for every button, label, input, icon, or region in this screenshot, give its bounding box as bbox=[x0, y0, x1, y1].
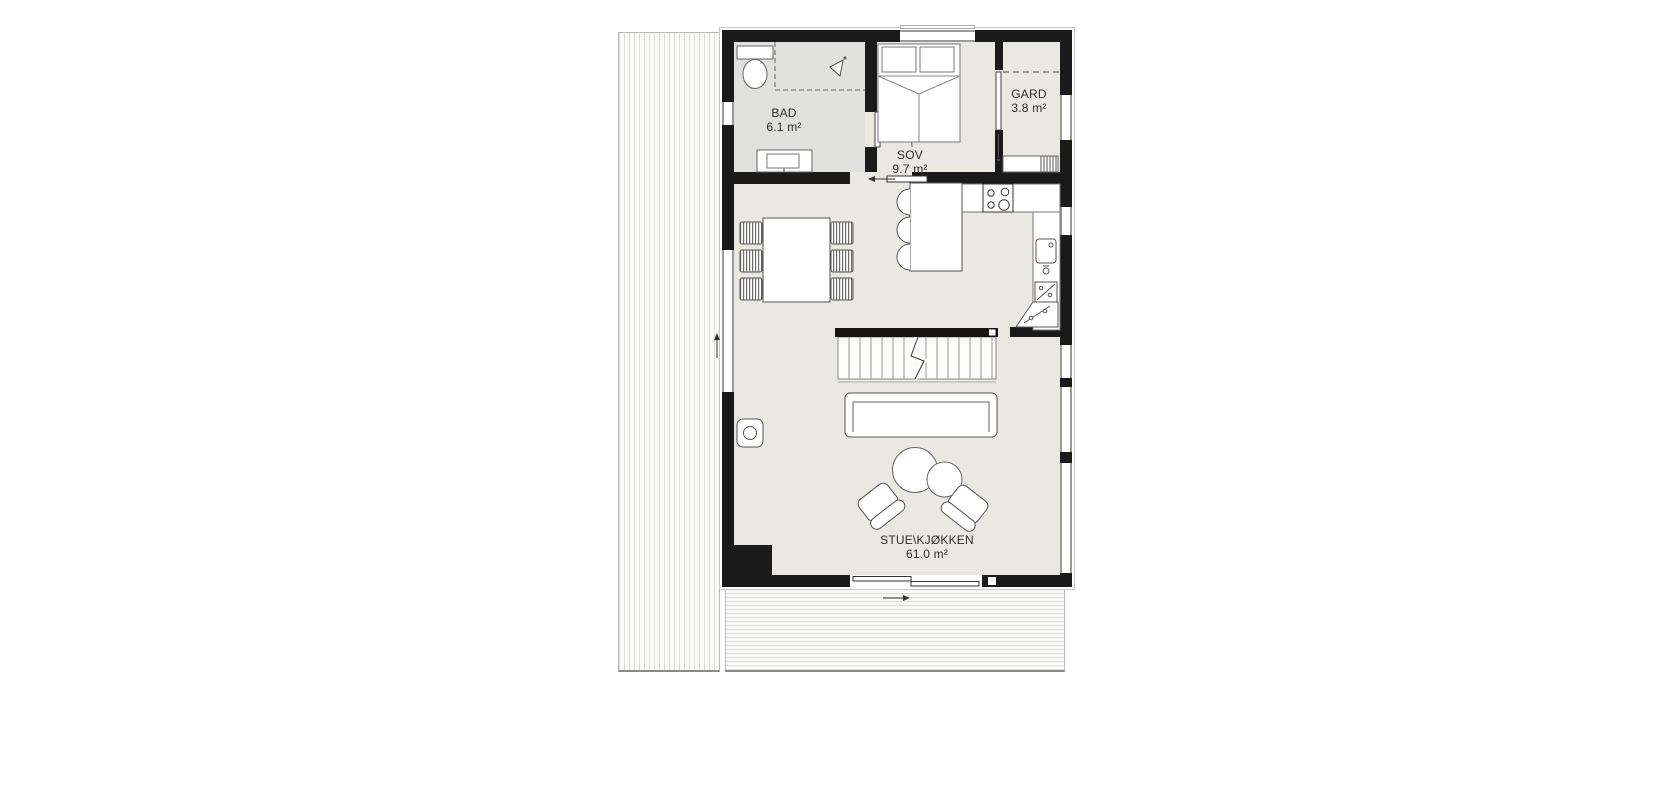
shower-icon bbox=[775, 42, 865, 90]
room-area: 9.7 m² bbox=[860, 162, 960, 176]
vanity-sink-icon bbox=[757, 150, 812, 172]
armchair-icon-left bbox=[854, 480, 907, 532]
room-name: SOV bbox=[860, 148, 960, 162]
sliding-door-icon-sov bbox=[869, 176, 927, 182]
room-label-bad: BAD 6.1 m² bbox=[734, 106, 834, 134]
kitchen-island-icon bbox=[897, 183, 962, 271]
room-name: STUE\KJØKKEN bbox=[847, 533, 1007, 547]
bar-stool-icon bbox=[897, 217, 910, 243]
bar-stool-icon bbox=[897, 244, 910, 270]
dishwasher-icon bbox=[1035, 282, 1057, 302]
sofa-icon bbox=[845, 393, 997, 437]
window-sill-top bbox=[900, 25, 975, 29]
corner-cabinet-icon bbox=[1016, 302, 1058, 327]
floor-plan: BAD 6.1 m² SOV 9.7 m² GARD 3.8 m² STUE\K… bbox=[617, 30, 1075, 675]
floorplan-canvas: BAD 6.1 m² SOV 9.7 m² GARD 3.8 m² STUE\K… bbox=[0, 0, 1670, 800]
dining-table-icon bbox=[740, 218, 853, 302]
toilet-icon bbox=[737, 46, 773, 89]
room-name: BAD bbox=[734, 106, 834, 120]
room-area: 61.0 m² bbox=[847, 547, 1007, 561]
bar-stool-icon bbox=[897, 189, 910, 215]
double-bed-icon bbox=[878, 44, 960, 142]
room-label-stue-kjokken: STUE\KJØKKEN 61.0 m² bbox=[847, 533, 1007, 561]
staircase-icon bbox=[835, 328, 998, 382]
sliding-door-icon-bottom bbox=[853, 577, 979, 599]
room-label-sov: SOV 9.7 m² bbox=[860, 148, 960, 176]
room-label-gard: GARD 3.8 m² bbox=[989, 87, 1069, 115]
room-name: GARD bbox=[989, 87, 1069, 101]
room-area: 3.8 m² bbox=[989, 101, 1069, 115]
room-area: 6.1 m² bbox=[734, 120, 834, 134]
wood-stove-icon bbox=[737, 419, 763, 447]
furniture-layer bbox=[617, 30, 1075, 675]
cooktop-icon bbox=[983, 184, 1013, 212]
